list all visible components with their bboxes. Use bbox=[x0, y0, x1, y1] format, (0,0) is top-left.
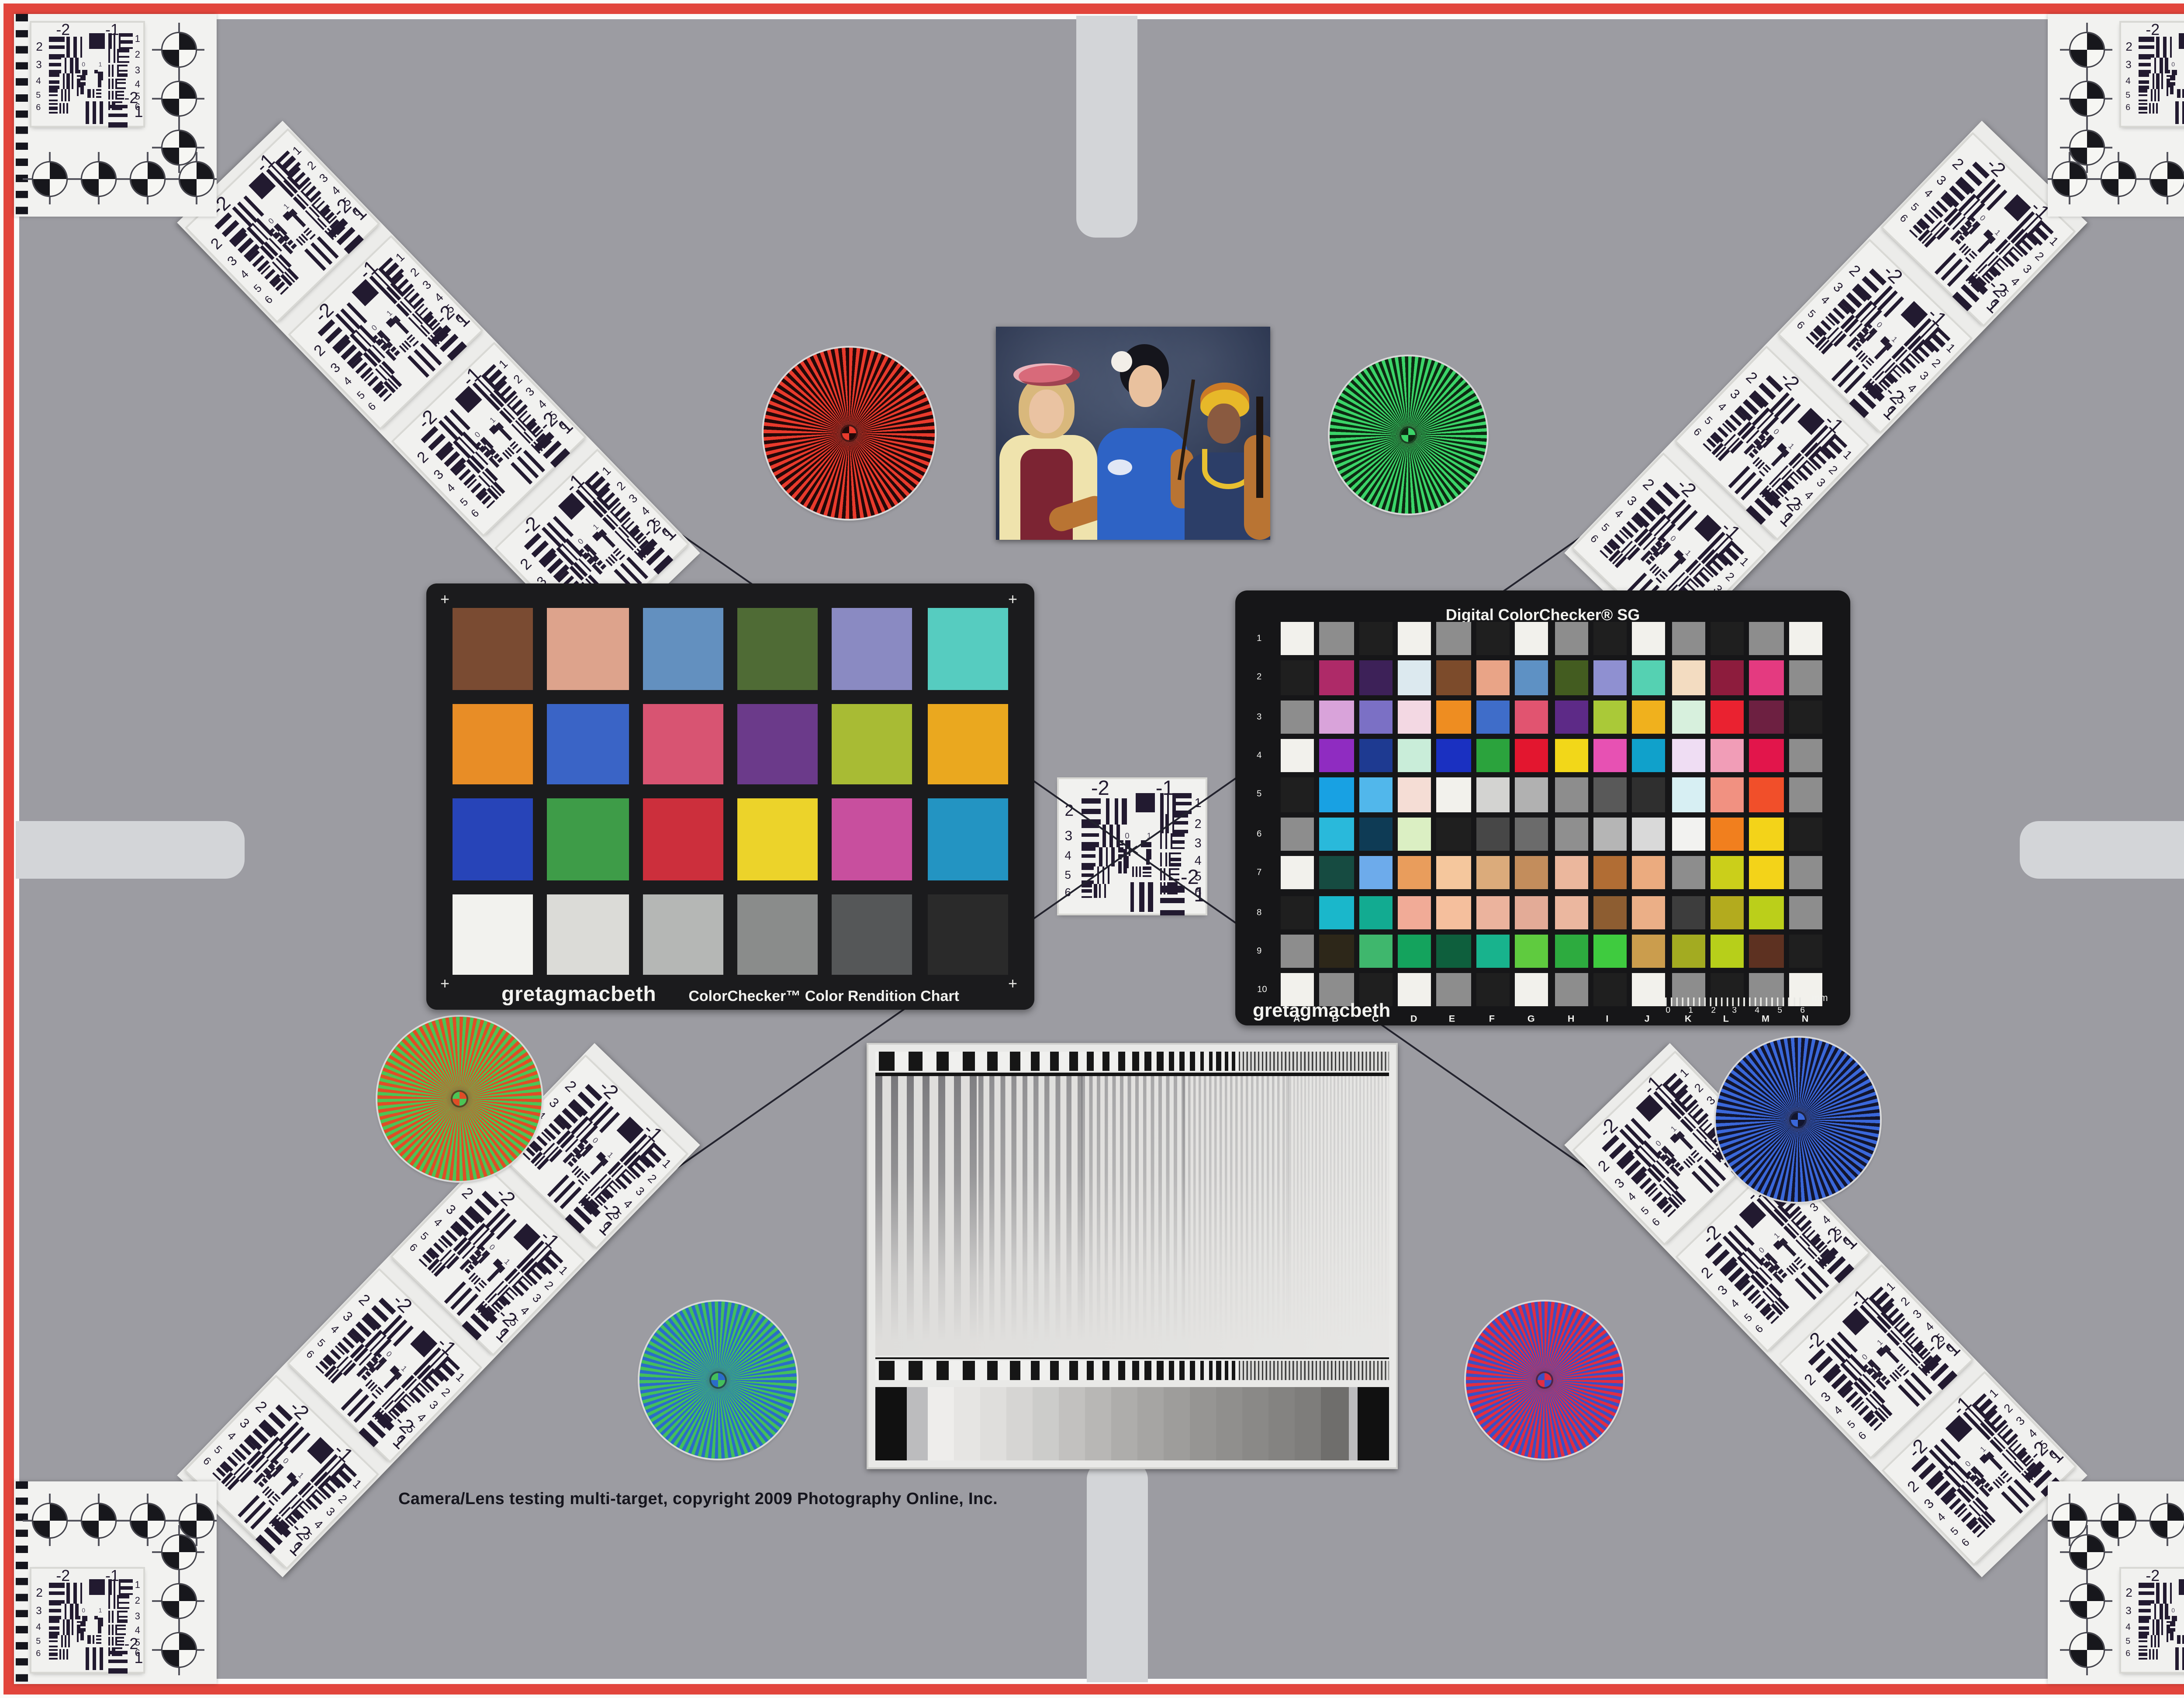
usaf-bar-group bbox=[1863, 358, 1875, 370]
usaf-bar bbox=[76, 80, 80, 81]
sg-patch bbox=[1320, 622, 1353, 656]
sg-row-label: 3 bbox=[1257, 713, 1261, 722]
sg-col-label: D bbox=[1410, 1015, 1417, 1025]
usaf-bar bbox=[2166, 88, 2169, 89]
usaf-bar-group bbox=[507, 437, 512, 442]
usaf-bar bbox=[119, 61, 130, 63]
usaf-black-square bbox=[90, 1579, 105, 1594]
usaf-bar bbox=[76, 1637, 79, 1638]
usaf-bar-group bbox=[1687, 1146, 1693, 1151]
sg-patch bbox=[1281, 856, 1314, 890]
sg-patch bbox=[1515, 817, 1549, 851]
usaf-bar bbox=[48, 80, 60, 83]
usaf-bar-group bbox=[76, 1627, 79, 1632]
sg-patch bbox=[1398, 778, 1431, 812]
usaf-bar-group bbox=[2170, 86, 2173, 90]
sg-col-label: F bbox=[1489, 1015, 1494, 1025]
usaf-element-number: 5 bbox=[356, 390, 368, 402]
usaf-bar-group bbox=[62, 74, 74, 89]
usaf-center-label: 1 bbox=[296, 1472, 304, 1481]
usaf-bar bbox=[117, 83, 125, 85]
usaf-bar-group bbox=[1889, 1370, 1901, 1383]
sg-patch bbox=[1593, 739, 1627, 773]
sweep-bar bbox=[936, 1052, 950, 1071]
usaf-element-number: 1 bbox=[1736, 558, 1749, 571]
usaf-bar bbox=[2152, 1620, 2154, 1635]
usaf-element-number: 2 bbox=[135, 53, 140, 62]
usaf-bar bbox=[76, 1631, 79, 1632]
sg-brand-label: gretagmacbeth bbox=[1253, 1001, 1390, 1022]
sg-patch bbox=[1476, 622, 1510, 656]
usaf-bar-group bbox=[48, 1620, 60, 1635]
usaf-bar bbox=[98, 80, 98, 84]
usaf-bar bbox=[2173, 81, 2174, 86]
usaf-bar-group bbox=[390, 355, 395, 361]
usaf-bar bbox=[83, 1627, 84, 1632]
usaf-bar bbox=[99, 1622, 100, 1626]
usaf-bar-group bbox=[81, 1622, 85, 1627]
usaf-element-number: 6 bbox=[1587, 535, 1599, 547]
sg-patch bbox=[1711, 895, 1744, 929]
usaf-bar-group bbox=[76, 86, 79, 90]
usaf-bar-group bbox=[2166, 70, 2170, 76]
right-edge-tab bbox=[2020, 821, 2184, 879]
usaf-bar bbox=[76, 1626, 80, 1627]
sg-patch bbox=[1750, 895, 1783, 929]
usaf-bar bbox=[2166, 72, 2170, 73]
usaf-element-number: 2 bbox=[644, 1174, 657, 1187]
usaf-black-square bbox=[1635, 1095, 1663, 1123]
sg-patch bbox=[1476, 739, 1510, 773]
wedge-step bbox=[980, 1387, 1007, 1460]
star-blue-green bbox=[639, 1301, 797, 1459]
usaf-element-number: 3 bbox=[341, 1309, 355, 1324]
usaf-element-number: 2 bbox=[616, 481, 629, 494]
sg-patch bbox=[1554, 935, 1588, 968]
usaf-element-number: 6 bbox=[264, 296, 276, 307]
usaf-bar-group bbox=[1794, 1265, 1830, 1301]
usaf-bar-group bbox=[269, 1494, 282, 1506]
usaf-bar bbox=[2150, 1635, 2152, 1648]
usaf-group-label: -2 bbox=[56, 23, 70, 39]
usaf-bar-group bbox=[59, 103, 67, 114]
usaf-bar bbox=[96, 1639, 102, 1641]
usaf-element-number: 2 bbox=[517, 556, 534, 573]
usaf-bar bbox=[113, 1595, 115, 1609]
usaf-bar bbox=[109, 1660, 127, 1664]
wedge-step bbox=[1242, 1387, 1269, 1460]
sg-row-label: 1 bbox=[1257, 635, 1261, 644]
usaf-center-label: 1 bbox=[386, 310, 394, 318]
usaf-bar bbox=[83, 1637, 83, 1640]
sg-patch bbox=[1281, 661, 1314, 694]
usaf-bar bbox=[2138, 103, 2146, 105]
usaf-element-number: 6 bbox=[1858, 1432, 1870, 1444]
usaf-element-number: 2 bbox=[414, 449, 431, 466]
sg-patch bbox=[1632, 817, 1666, 851]
sg-patch bbox=[1515, 700, 1549, 734]
usaf-bar bbox=[2148, 1649, 2150, 1660]
usaf-bar-group bbox=[109, 1636, 117, 1646]
usaf-bar bbox=[87, 1635, 89, 1643]
usaf-bar-group bbox=[1997, 1466, 2002, 1471]
sg-patch bbox=[1398, 856, 1431, 890]
sg-patch bbox=[1593, 935, 1627, 968]
sg-patch bbox=[1593, 856, 1627, 890]
sg-patch bbox=[1711, 778, 1744, 812]
usaf-bar bbox=[76, 92, 79, 93]
usaf-bar bbox=[92, 89, 93, 97]
usaf-bar bbox=[72, 74, 74, 89]
sg-patch bbox=[1437, 739, 1471, 773]
sg-patch bbox=[1320, 700, 1353, 734]
sg-patch bbox=[1554, 700, 1588, 734]
sg-patch bbox=[1711, 661, 1744, 694]
sg-row-label: 2 bbox=[1257, 674, 1261, 683]
usaf-bar bbox=[114, 1580, 116, 1596]
usaf-bar-group bbox=[2138, 37, 2153, 57]
usaf-element-number: 5 bbox=[1640, 1206, 1652, 1218]
usaf-element-number: 6 bbox=[2125, 1653, 2130, 1662]
usaf-element-number: 2 bbox=[1698, 1264, 1715, 1281]
usaf-bar bbox=[109, 1624, 111, 1635]
usaf-bar bbox=[2163, 1583, 2166, 1603]
sg-patch bbox=[1437, 622, 1471, 656]
usaf-tile-corner: -2-12345612345601-21 bbox=[31, 1569, 143, 1672]
usaf-bar bbox=[109, 1636, 111, 1646]
usaf-element-number: 5 bbox=[211, 1445, 223, 1457]
quadrant-fiducial bbox=[2150, 162, 2183, 195]
usaf-element-number: 3 bbox=[238, 1416, 252, 1430]
cello-fingerboard bbox=[1256, 397, 1262, 498]
sweep-bar bbox=[1190, 1052, 1195, 1071]
usaf-bar bbox=[449, 410, 470, 431]
sg-patch bbox=[1672, 700, 1705, 734]
usaf-element-number: 4 bbox=[2125, 1625, 2131, 1634]
sg-patch bbox=[1359, 935, 1393, 968]
usaf-bar bbox=[96, 90, 102, 92]
sg-patch bbox=[1359, 856, 1393, 890]
usaf-bar bbox=[2161, 1620, 2163, 1635]
usaf-bar bbox=[62, 74, 65, 89]
usaf-element-number: 3 bbox=[632, 1187, 645, 1200]
usaf-bar bbox=[96, 1636, 102, 1638]
usaf-element-number: 3 bbox=[319, 174, 332, 187]
quadrant-fiducial bbox=[2101, 1503, 2134, 1536]
cc-patch bbox=[453, 703, 533, 784]
star-red-blue bbox=[1466, 1301, 1623, 1459]
usaf-bar bbox=[48, 1626, 60, 1629]
usaf-bar-group bbox=[1674, 1170, 1679, 1176]
usaf-bar bbox=[100, 76, 101, 80]
usaf-element-number: 1 bbox=[452, 1374, 465, 1387]
sg-col-label: I bbox=[1606, 1015, 1608, 1025]
usaf-bar bbox=[2173, 1616, 2174, 1622]
usaf-element-number: 3 bbox=[431, 467, 445, 482]
usaf-bar bbox=[116, 98, 124, 100]
usaf-bar-group bbox=[98, 71, 101, 75]
usaf-bar-group bbox=[48, 74, 60, 89]
usaf-bar-group bbox=[109, 1650, 127, 1673]
usaf-element-number: 3 bbox=[547, 1096, 562, 1110]
sg-patch bbox=[1398, 661, 1431, 694]
usaf-bar-group bbox=[117, 78, 125, 89]
usaf-bar-group bbox=[80, 91, 83, 94]
usaf-bar bbox=[99, 1617, 100, 1621]
usaf-bar-group bbox=[578, 1173, 591, 1186]
usaf-bar bbox=[69, 1635, 71, 1648]
registration-plus: + bbox=[1008, 977, 1017, 992]
usaf-element-number: 3 bbox=[225, 254, 239, 268]
usaf-bar bbox=[1837, 1332, 1857, 1353]
usaf-bar bbox=[83, 76, 83, 81]
sg-ruler-number: 5 bbox=[1777, 1007, 1782, 1015]
usaf-bar bbox=[2171, 1616, 2172, 1622]
usaf-bar bbox=[2173, 70, 2174, 76]
sg-brand: gretagmacbeth bbox=[1253, 994, 1390, 1025]
wedge-step bbox=[1033, 1387, 1060, 1460]
usaf-element-number: 5 bbox=[1949, 1527, 1961, 1539]
usaf-bar bbox=[2182, 101, 2184, 124]
usaf-bar-group bbox=[98, 1622, 101, 1626]
usaf-element-number: 5 bbox=[1908, 202, 1920, 214]
sweep-bar bbox=[1030, 1360, 1040, 1379]
usaf-bar bbox=[120, 1580, 132, 1583]
usaf-element-number: 4 bbox=[1936, 1513, 1949, 1525]
usaf-element-number: 4 bbox=[343, 377, 356, 390]
usaf-bar-group bbox=[76, 91, 79, 94]
sweep-bar bbox=[1216, 1360, 1220, 1379]
usaf-bar-group bbox=[2177, 1635, 2183, 1643]
usaf-bar bbox=[48, 1583, 64, 1587]
registration-plus: + bbox=[1008, 592, 1017, 608]
usaf-bar-group bbox=[1759, 464, 1772, 477]
usaf-tile-corner: -2-12345612345601-21 bbox=[2121, 1569, 2184, 1672]
usaf-bar-group bbox=[1786, 1263, 1798, 1276]
star-center-dot bbox=[711, 1373, 725, 1387]
colorchecker-title: ColorChecker™ Color Rendition Chart bbox=[688, 987, 959, 1004]
cc-patch bbox=[927, 608, 1008, 689]
usaf-bar-group bbox=[2150, 89, 2160, 102]
usaf-bar bbox=[2150, 89, 2152, 102]
sg-patch bbox=[1437, 778, 1471, 812]
sg-ruler-numbers: 0123456 bbox=[1665, 1006, 1805, 1017]
usaf-bar bbox=[2166, 1632, 2169, 1633]
usaf-bar bbox=[2171, 91, 2171, 94]
usaf-bar bbox=[2160, 57, 2162, 74]
usaf-black-square bbox=[1738, 1202, 1766, 1230]
sg-patch bbox=[1437, 856, 1471, 890]
sg-ruler-number: 2 bbox=[1710, 1007, 1715, 1015]
edge-tick-ruler bbox=[16, 1481, 28, 1684]
usaf-bar bbox=[99, 71, 100, 75]
usaf-group-label: 1 bbox=[135, 1650, 143, 1666]
usaf-bar bbox=[2158, 89, 2160, 102]
usaf-element-number: 3 bbox=[1625, 494, 1639, 508]
usaf-bar bbox=[81, 1637, 82, 1640]
sweep-bar bbox=[1102, 1360, 1110, 1379]
wedge-step bbox=[1321, 1387, 1348, 1460]
usaf-bar bbox=[1940, 1439, 1960, 1460]
usaf-bar bbox=[59, 1649, 60, 1660]
usaf-element-number: 4 bbox=[1818, 296, 1830, 308]
usaf-bar bbox=[2166, 1622, 2170, 1623]
sweep-bar bbox=[1102, 1052, 1110, 1071]
usaf-bar bbox=[1734, 1225, 1754, 1246]
usaf-bar bbox=[100, 101, 103, 124]
usaf-bar bbox=[2170, 1627, 2171, 1632]
quadrant-fiducial bbox=[162, 1632, 195, 1666]
cc-patch bbox=[737, 703, 818, 784]
usaf-element-number: 3 bbox=[444, 1202, 459, 1217]
quadrant-fiducial bbox=[130, 162, 163, 195]
usaf-bar bbox=[99, 76, 100, 80]
usaf-center-label: 1 bbox=[502, 1259, 511, 1267]
usaf-bar bbox=[109, 1595, 111, 1609]
usaf-bar bbox=[100, 1626, 100, 1630]
usaf-bar bbox=[112, 1636, 114, 1646]
usaf-bar bbox=[60, 1635, 62, 1648]
registration-plus: + bbox=[440, 592, 449, 608]
usaf-bar bbox=[64, 1635, 66, 1648]
flower-crown bbox=[1013, 363, 1080, 386]
wedge-step bbox=[954, 1387, 981, 1460]
usaf-bar-group bbox=[2166, 81, 2169, 86]
sg-patch bbox=[1789, 700, 1822, 734]
usaf-element-number: 2 bbox=[1722, 572, 1735, 585]
usaf-bar bbox=[67, 1620, 69, 1635]
sweep-bar bbox=[1232, 1052, 1235, 1071]
usaf-bar-group bbox=[117, 64, 127, 77]
sweep-fine-bars bbox=[1238, 1052, 1389, 1071]
sweep-bar bbox=[879, 1360, 894, 1379]
usaf-center-label: 1 bbox=[1787, 443, 1795, 452]
usaf-bar bbox=[2171, 1637, 2171, 1640]
usaf-bar bbox=[96, 96, 102, 98]
usaf-bar bbox=[90, 89, 91, 97]
sweep-bar bbox=[1199, 1052, 1204, 1071]
usaf-bar bbox=[48, 1617, 62, 1620]
usaf-black-square bbox=[1945, 1416, 1972, 1443]
usaf-bar-group bbox=[109, 1624, 117, 1635]
usaf-element-number: 6 bbox=[1690, 428, 1702, 440]
usaf-bar bbox=[67, 37, 70, 57]
usaf-bar-group bbox=[76, 70, 81, 76]
usaf-bar bbox=[100, 80, 100, 84]
sg-patch bbox=[1515, 622, 1549, 656]
usaf-bar bbox=[2166, 80, 2170, 81]
usaf-bar bbox=[2166, 86, 2169, 87]
usaf-element-number: 2 bbox=[2125, 42, 2132, 54]
cc-patch bbox=[737, 894, 818, 975]
usaf-bar bbox=[76, 83, 79, 84]
usaf-bar bbox=[2175, 1647, 2179, 1670]
usaf-element-number: 2 bbox=[36, 1588, 43, 1600]
usaf-bar bbox=[2170, 81, 2171, 86]
usaf-bar-group bbox=[48, 57, 62, 74]
usaf-bar bbox=[81, 1622, 82, 1627]
quadrant-fiducial bbox=[2070, 1535, 2103, 1568]
usaf-element-number: 2 bbox=[306, 161, 319, 174]
cc-patch bbox=[832, 894, 913, 975]
sweep-bar bbox=[1118, 1360, 1125, 1379]
usaf-element-number: 1 bbox=[555, 1267, 568, 1280]
sg-patch bbox=[1789, 661, 1822, 694]
sg-patch bbox=[1750, 817, 1783, 851]
usaf-bar-group bbox=[87, 89, 93, 97]
sweep-bar bbox=[1132, 1052, 1138, 1071]
usaf-bar-group bbox=[86, 101, 103, 124]
usaf-bar bbox=[116, 94, 124, 97]
usaf-bar bbox=[67, 74, 69, 89]
usaf-element-number: 2 bbox=[541, 1281, 554, 1294]
usaf-center-label: 1 bbox=[605, 1152, 614, 1160]
usaf-group-label: -2 bbox=[2146, 1569, 2160, 1585]
usaf-bar bbox=[2138, 1632, 2149, 1635]
usaf-bar bbox=[2166, 1637, 2168, 1638]
quadrant-fiducial bbox=[179, 162, 212, 195]
usaf-bar bbox=[81, 1627, 82, 1632]
usaf-bar bbox=[2166, 81, 2169, 82]
sweep-bar bbox=[1208, 1052, 1212, 1071]
usaf-element-number: 4 bbox=[1714, 402, 1727, 415]
usaf-bar-group bbox=[398, 341, 411, 353]
usaf-bar bbox=[113, 49, 115, 63]
usaf-element-number: 1 bbox=[1942, 344, 1955, 357]
quadrant-fiducial bbox=[162, 1584, 195, 1617]
usaf-bar bbox=[96, 1642, 102, 1644]
usaf-element-number: 3 bbox=[328, 360, 342, 375]
sweep-bar bbox=[1216, 1052, 1220, 1071]
usaf-bar-group bbox=[86, 1647, 103, 1670]
usaf-element-number: 2 bbox=[253, 1398, 270, 1415]
usaf-bar bbox=[84, 76, 85, 81]
sg-patch bbox=[1632, 895, 1666, 929]
usaf-black-square bbox=[2179, 33, 2184, 48]
cc-patch bbox=[453, 894, 533, 975]
usaf-bar bbox=[346, 303, 366, 324]
sweep-bar bbox=[1086, 1360, 1095, 1379]
cc-patch bbox=[927, 798, 1008, 880]
usaf-bar-group bbox=[117, 1610, 127, 1623]
corner-target-block: -2-12345612345601-21 bbox=[14, 1481, 217, 1684]
cc-patch bbox=[737, 798, 818, 880]
usaf-bar bbox=[48, 1649, 57, 1651]
usaf-bar bbox=[101, 1617, 102, 1621]
usaf-bar bbox=[2172, 81, 2173, 86]
usaf-element-number: 6 bbox=[1793, 321, 1805, 333]
usaf-bar-group bbox=[109, 64, 118, 77]
usaf-black-square bbox=[90, 33, 105, 48]
sweep-bar bbox=[1118, 1052, 1125, 1071]
wedge-step bbox=[928, 1387, 955, 1460]
usaf-bar bbox=[2156, 1620, 2159, 1635]
star-center-dot bbox=[1538, 1373, 1552, 1387]
usaf-bar-group bbox=[2138, 57, 2151, 74]
usaf-bar bbox=[2171, 76, 2172, 81]
sg-patch bbox=[1632, 700, 1666, 734]
usaf-bar-group bbox=[2170, 1632, 2173, 1636]
sg-patch bbox=[1320, 778, 1353, 812]
usaf-bar bbox=[48, 111, 57, 114]
usaf-element-number: 5 bbox=[253, 284, 265, 296]
usaf-bar bbox=[2170, 37, 2173, 57]
usaf-bar bbox=[69, 89, 71, 102]
usaf-element-number: 3 bbox=[2019, 265, 2032, 278]
usaf-bar bbox=[81, 91, 82, 94]
usaf-bar bbox=[2138, 1649, 2146, 1651]
usaf-bar bbox=[48, 1620, 60, 1623]
